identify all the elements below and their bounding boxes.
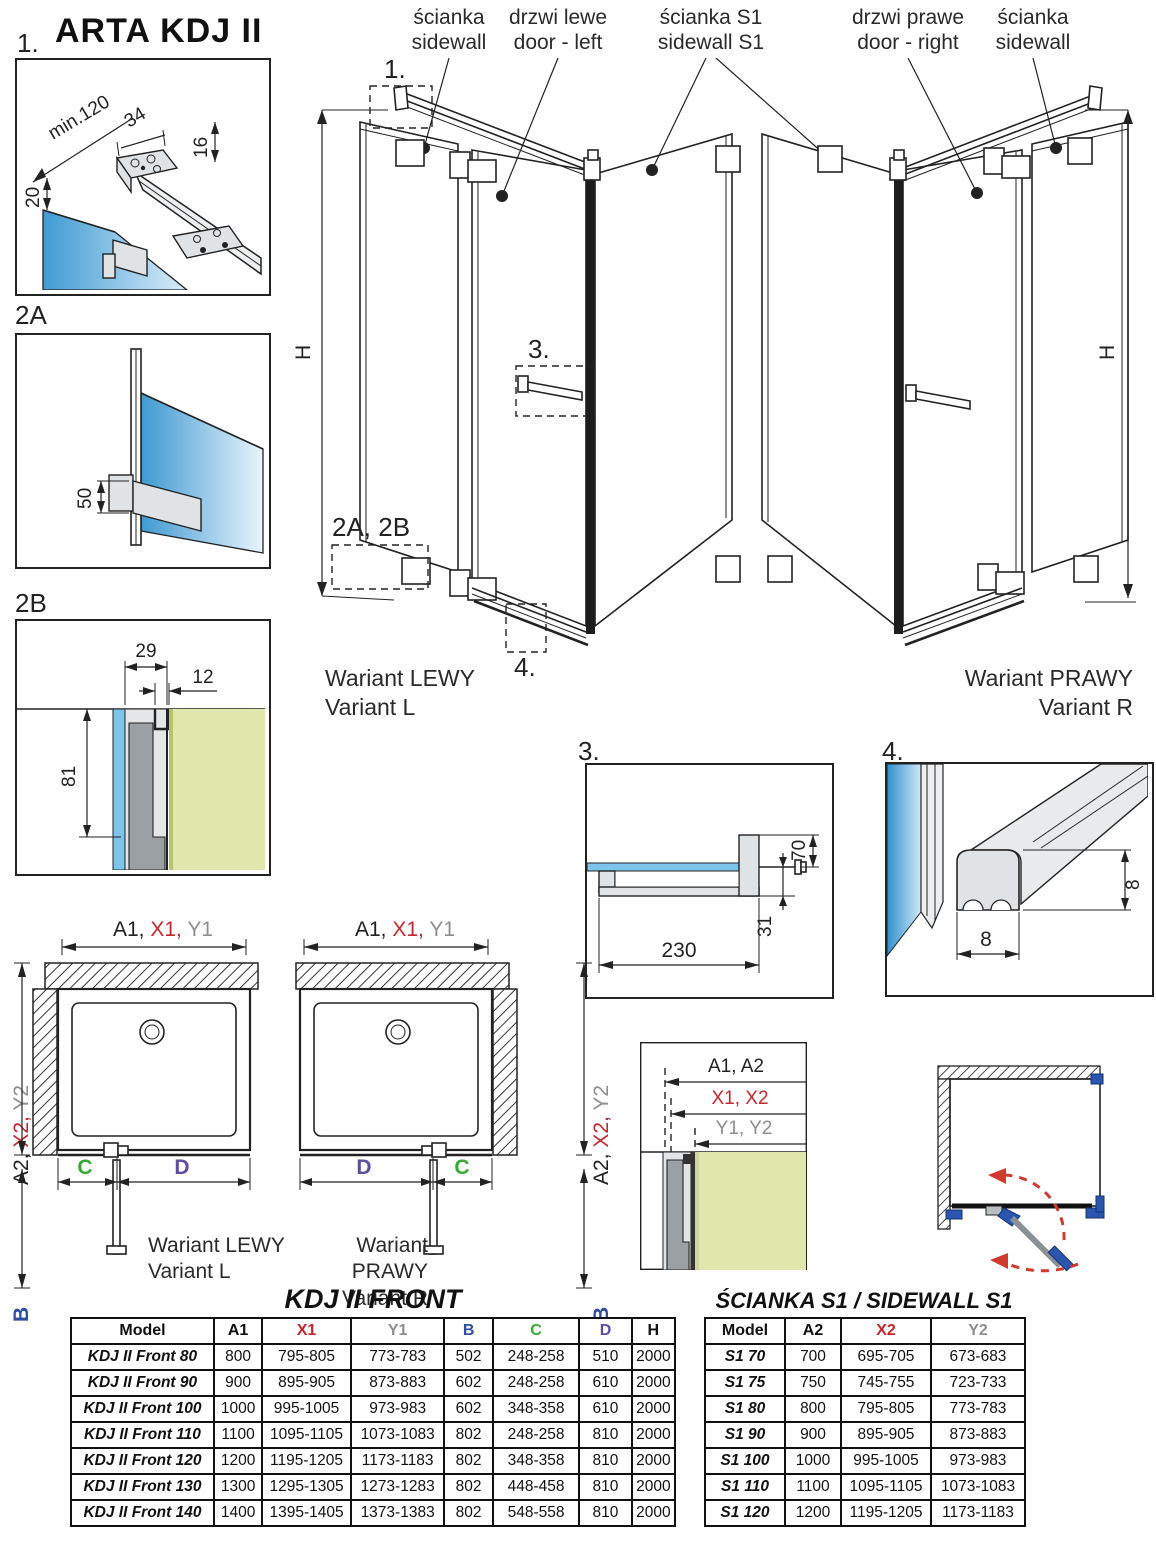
model-cell: S1 90 bbox=[705, 1422, 785, 1448]
value-cell: 348-358 bbox=[493, 1396, 580, 1422]
leader-lines bbox=[418, 58, 1062, 202]
value-cell: 2000 bbox=[632, 1344, 675, 1370]
table-row: KDJ II Front 11011001095-11051073-108380… bbox=[71, 1422, 675, 1448]
value-cell: 1295-1305 bbox=[262, 1474, 351, 1500]
value-cell: 802 bbox=[444, 1474, 492, 1500]
column-header-a2: A2 bbox=[785, 1318, 841, 1344]
column-header-h: H bbox=[632, 1318, 675, 1344]
corner-post bbox=[894, 168, 903, 634]
dim-31: 31 bbox=[755, 916, 776, 937]
header-row: ModelA2X2Y2 bbox=[705, 1318, 1025, 1344]
model-cell: KDJ II Front 110 bbox=[71, 1422, 214, 1448]
value-cell: 1273-1283 bbox=[351, 1474, 445, 1500]
dim-230: 230 bbox=[661, 939, 696, 962]
value-cell: 810 bbox=[579, 1500, 631, 1526]
glass-wall-section bbox=[699, 1152, 806, 1270]
dim-h-left: H bbox=[292, 345, 315, 360]
label-door-right: drzwi prawedoor - right bbox=[838, 6, 978, 56]
dim-c: C bbox=[77, 1156, 92, 1179]
model-cell: S1 120 bbox=[705, 1500, 785, 1526]
callout-2ab: 2A, 2B bbox=[332, 512, 410, 542]
drain bbox=[140, 1020, 164, 1044]
value-cell: 750 bbox=[785, 1370, 841, 1396]
value-cell: 602 bbox=[444, 1396, 492, 1422]
value-cell: 502 bbox=[444, 1344, 492, 1370]
value-cell: 1000 bbox=[214, 1396, 262, 1422]
column-header-y1: Y1 bbox=[351, 1318, 445, 1344]
value-cell: 1173-1183 bbox=[931, 1500, 1025, 1526]
table-row: S1 1001000995-1005973-983 bbox=[705, 1448, 1025, 1474]
door-handle bbox=[906, 385, 916, 401]
model-cell: KDJ II Front 120 bbox=[71, 1448, 214, 1474]
value-cell: 2000 bbox=[632, 1448, 675, 1474]
door-open-leaf bbox=[1012, 1218, 1060, 1266]
wall-hatch-top bbox=[938, 1066, 1100, 1079]
front-table-block: KDJ II FRONT ModelA1X1Y1BCDH KDJ II Fron… bbox=[70, 1284, 676, 1527]
model-cell: S1 110 bbox=[705, 1474, 785, 1500]
value-cell: 1200 bbox=[785, 1500, 841, 1526]
ref-dim-x: X1, X2 bbox=[711, 1088, 768, 1109]
table-row: S1 12012001195-12051173-1183 bbox=[705, 1500, 1025, 1526]
table-row: KDJ II Front 90900895-905873-883602248-2… bbox=[71, 1370, 675, 1396]
detail-4-box: 8 8 bbox=[885, 762, 1154, 997]
value-cell: 795-805 bbox=[262, 1344, 351, 1370]
label-door-left: drzwi lewedoor - left bbox=[488, 6, 628, 56]
value-cell: 673-683 bbox=[931, 1344, 1025, 1370]
table-row: KDJ II Front 12012001195-12051173-118380… bbox=[71, 1448, 675, 1474]
table-row: S1 90900895-905873-883 bbox=[705, 1422, 1025, 1448]
value-cell: 800 bbox=[214, 1344, 262, 1370]
wall-hatch-right bbox=[493, 989, 517, 1155]
wall-hatch-top bbox=[296, 963, 509, 989]
s1-table: ModelA2X2Y2 S1 70700695-705673-683S1 757… bbox=[704, 1317, 1026, 1527]
ref-dim-a: A1, A2 bbox=[708, 1056, 764, 1077]
value-cell: 1300 bbox=[214, 1474, 262, 1500]
ref-dim-y: Y1, Y2 bbox=[716, 1118, 773, 1139]
value-cell: 995-1005 bbox=[841, 1448, 931, 1474]
table-row: KDJ II Front 1001000995-1005973-98360234… bbox=[71, 1396, 675, 1422]
caption-variant-left: Wariant LEWYVariant L bbox=[325, 664, 575, 722]
detail-2a-drawing: 50 bbox=[17, 335, 265, 563]
table-row: S1 80800795-805773-783 bbox=[705, 1396, 1025, 1422]
variant-left-drawing: 1. 3. 2A, 2B 4. H bbox=[292, 58, 740, 682]
front-table-title: KDJ II FRONT bbox=[70, 1284, 676, 1315]
enclosure-outline bbox=[950, 1079, 1100, 1206]
edge-profile bbox=[921, 764, 943, 928]
wall-bracket bbox=[716, 556, 740, 582]
hinge bbox=[104, 1143, 118, 1157]
callout-4-box bbox=[506, 604, 546, 652]
value-cell: 895-905 bbox=[841, 1422, 931, 1448]
label-sidewall-right: ściankasidewall bbox=[963, 6, 1103, 56]
tray-inner bbox=[314, 1003, 478, 1136]
value-cell: 610 bbox=[579, 1370, 631, 1396]
handle-mount bbox=[739, 835, 759, 896]
handle-bottom bbox=[599, 887, 759, 896]
detail-3-box: 70 31 230 bbox=[585, 763, 834, 999]
value-cell: 1073-1083 bbox=[351, 1422, 445, 1448]
value-cell: 610 bbox=[579, 1396, 631, 1422]
value-cell: 1195-1205 bbox=[841, 1500, 931, 1526]
value-cell: 1100 bbox=[214, 1422, 262, 1448]
plan-left-b-label: B bbox=[10, 1307, 34, 1322]
value-cell: 1373-1383 bbox=[351, 1500, 445, 1526]
value-cell: 1073-1083 bbox=[931, 1474, 1025, 1500]
ref-detail-drawing: A1, A2 X1, X2 Y1, Y2 bbox=[640, 1042, 807, 1270]
column-header-model: Model bbox=[71, 1318, 214, 1344]
value-cell: 1195-1205 bbox=[262, 1448, 351, 1474]
callout-1-label: 1. bbox=[17, 28, 39, 59]
swing-arrow-in bbox=[988, 1168, 1006, 1184]
s1-table-title: ŚCIANKA S1 / SIDEWALL S1 bbox=[704, 1288, 1024, 1314]
value-cell: 800 bbox=[785, 1396, 841, 1422]
hinge-bottom-left bbox=[946, 1210, 962, 1219]
dim-20: 20 bbox=[23, 187, 44, 208]
value-cell: 2000 bbox=[632, 1370, 675, 1396]
dim-70: 70 bbox=[789, 840, 810, 861]
model-cell: S1 100 bbox=[705, 1448, 785, 1474]
glass-panel bbox=[887, 764, 921, 956]
dim-d: D bbox=[174, 1156, 189, 1179]
value-cell: 802 bbox=[444, 1448, 492, 1474]
page-title: ARTA KDJ II bbox=[55, 12, 262, 51]
hinge bbox=[432, 1143, 446, 1157]
value-cell: 773-783 bbox=[351, 1344, 445, 1370]
wall-bracket bbox=[716, 146, 740, 172]
column-header-d: D bbox=[579, 1318, 631, 1344]
header-row: ModelA1X1Y1BCDH bbox=[71, 1318, 675, 1344]
value-cell: 2000 bbox=[632, 1396, 675, 1422]
value-cell: 1100 bbox=[785, 1474, 841, 1500]
wall-bracket bbox=[1068, 138, 1092, 164]
dim-81: 81 bbox=[59, 766, 80, 787]
callout-2a-label: 2A bbox=[15, 300, 47, 331]
dim-h-right: H bbox=[1096, 345, 1119, 360]
column-header-model: Model bbox=[705, 1318, 785, 1344]
tray-inner bbox=[72, 1003, 236, 1136]
seal-face bbox=[957, 850, 1019, 910]
detail-4-drawing: 8 8 bbox=[887, 764, 1148, 991]
tray-outer bbox=[300, 989, 492, 1150]
callout-1: 1. bbox=[384, 58, 406, 84]
value-cell: 248-258 bbox=[493, 1344, 580, 1370]
plan-caption-left: Wariant LEWYVariant L bbox=[148, 1233, 298, 1286]
value-cell: 248-258 bbox=[493, 1422, 580, 1448]
value-cell: 773-783 bbox=[931, 1396, 1025, 1422]
table-row: KDJ II Front 13013001295-13051273-128380… bbox=[71, 1474, 675, 1500]
wall-section bbox=[173, 709, 265, 870]
value-cell: 2000 bbox=[632, 1474, 675, 1500]
dim-34: 34 bbox=[121, 103, 150, 132]
detail-1-drawing: min.120 34 16 20 bbox=[17, 60, 265, 290]
value-cell: 700 bbox=[785, 1344, 841, 1370]
value-cell: 745-755 bbox=[841, 1370, 931, 1396]
value-cell: 2000 bbox=[632, 1500, 675, 1526]
detail-2a-box: 50 bbox=[15, 333, 271, 569]
model-cell: S1 70 bbox=[705, 1344, 785, 1370]
value-cell: 802 bbox=[444, 1500, 492, 1526]
swing-arrow-out bbox=[990, 1253, 1008, 1269]
screw bbox=[795, 860, 801, 874]
label-sidewall-s1: ścianka S1sidewall S1 bbox=[641, 6, 781, 56]
value-cell: 723-733 bbox=[931, 1370, 1025, 1396]
value-cell: 1200 bbox=[214, 1448, 262, 1474]
value-cell: 810 bbox=[579, 1474, 631, 1500]
column-header-c: C bbox=[493, 1318, 580, 1344]
value-cell: 900 bbox=[785, 1422, 841, 1448]
value-cell: 900 bbox=[214, 1370, 262, 1396]
support-bar bbox=[135, 172, 261, 274]
value-cell: 548-558 bbox=[493, 1500, 580, 1526]
value-cell: 802 bbox=[444, 1422, 492, 1448]
callout-3: 3. bbox=[528, 334, 550, 364]
tray-outer bbox=[58, 989, 250, 1150]
detail-1-box: min.120 34 16 20 bbox=[15, 58, 271, 296]
front-table: ModelA1X1Y1BCDH KDJ II Front 80800795-80… bbox=[70, 1317, 676, 1527]
value-cell: 1173-1183 bbox=[351, 1448, 445, 1474]
column-header-x1: X1 bbox=[262, 1318, 351, 1344]
value-cell: 348-358 bbox=[493, 1448, 580, 1474]
caption-variant-right: Wariant PRAWYVariant R bbox=[935, 664, 1133, 722]
value-cell: 448-458 bbox=[493, 1474, 580, 1500]
callout-2b-label: 2B bbox=[15, 588, 47, 619]
detail-3-drawing: 70 31 230 bbox=[587, 765, 828, 993]
value-cell: 810 bbox=[579, 1448, 631, 1474]
wall-bracket bbox=[402, 558, 430, 584]
wall-hatch-left bbox=[938, 1079, 950, 1229]
value-cell: 2000 bbox=[632, 1422, 675, 1448]
column-header-y2: Y2 bbox=[931, 1318, 1025, 1344]
dim-12: 12 bbox=[192, 667, 213, 688]
door-swing-plan bbox=[928, 1058, 1120, 1296]
drain bbox=[386, 1020, 410, 1044]
dim-50: 50 bbox=[75, 488, 96, 509]
value-cell: 995-1005 bbox=[262, 1396, 351, 1422]
wall-bracket bbox=[1074, 556, 1098, 582]
dim-d: D bbox=[356, 1156, 371, 1179]
value-cell: 1095-1105 bbox=[262, 1422, 351, 1448]
table-row: S1 11011001095-11051073-1083 bbox=[705, 1474, 1025, 1500]
column-header-a1: A1 bbox=[214, 1318, 262, 1344]
hinge-top bbox=[1091, 1074, 1103, 1084]
door-handle bbox=[518, 376, 528, 392]
s1-table-block: ŚCIANKA S1 / SIDEWALL S1 ModelA2X2Y2 S1 … bbox=[704, 1288, 1024, 1527]
value-cell: 873-883 bbox=[351, 1370, 445, 1396]
dim-8h: 8 bbox=[980, 928, 992, 951]
isometric-views: 1. 3. 2A, 2B 4. H bbox=[290, 58, 1156, 748]
value-cell: 973-983 bbox=[931, 1448, 1025, 1474]
value-cell: 1095-1105 bbox=[841, 1474, 931, 1500]
model-cell: S1 80 bbox=[705, 1396, 785, 1422]
technical-sheet: ARTA KDJ II 1. 2A 2B bbox=[0, 0, 1156, 1546]
column-header-x2: X2 bbox=[841, 1318, 931, 1344]
value-cell: 973-983 bbox=[351, 1396, 445, 1422]
detail-2b-drawing: 29 12 81 bbox=[17, 621, 265, 870]
detail-2b-box: 29 12 81 bbox=[15, 619, 271, 876]
glass-panel bbox=[141, 393, 263, 553]
table-row: S1 70700695-705673-683 bbox=[705, 1344, 1025, 1370]
model-cell: KDJ II Front 130 bbox=[71, 1474, 214, 1500]
value-cell: 873-883 bbox=[931, 1422, 1025, 1448]
clamp-back bbox=[109, 475, 133, 511]
value-cell: 602 bbox=[444, 1370, 492, 1396]
model-cell: KDJ II Front 100 bbox=[71, 1396, 214, 1422]
table-row: S1 75750745-755723-733 bbox=[705, 1370, 1025, 1396]
wall-hatch-top bbox=[45, 963, 258, 989]
wall-bracket bbox=[396, 140, 424, 166]
model-cell: S1 75 bbox=[705, 1370, 785, 1396]
variant-right-drawing: H bbox=[762, 86, 1136, 645]
table-row: KDJ II Front 14014001395-14051373-138380… bbox=[71, 1500, 675, 1526]
model-cell: KDJ II Front 80 bbox=[71, 1344, 214, 1370]
model-cell: KDJ II Front 90 bbox=[71, 1370, 214, 1396]
glass-section bbox=[113, 709, 125, 870]
model-cell: KDJ II Front 140 bbox=[71, 1500, 214, 1526]
value-cell: 1400 bbox=[214, 1500, 262, 1526]
value-cell: 695-705 bbox=[841, 1344, 931, 1370]
column-header-b: B bbox=[444, 1318, 492, 1344]
value-cell: 510 bbox=[579, 1344, 631, 1370]
value-cell: 795-805 bbox=[841, 1396, 931, 1422]
value-cell: 1395-1405 bbox=[262, 1500, 351, 1526]
dim-c: C bbox=[454, 1156, 469, 1179]
value-cell: 248-258 bbox=[493, 1370, 580, 1396]
wall-bracket bbox=[768, 556, 792, 582]
glass-section bbox=[587, 863, 749, 871]
value-cell: 810 bbox=[579, 1422, 631, 1448]
table-row: KDJ II Front 80800795-805773-783502248-2… bbox=[71, 1344, 675, 1370]
wall-hatch-left bbox=[33, 989, 57, 1155]
dim-29: 29 bbox=[135, 641, 156, 662]
value-cell: 1000 bbox=[785, 1448, 841, 1474]
value-cell: 895-905 bbox=[262, 1370, 351, 1396]
dim-8v: 8 bbox=[1123, 879, 1144, 890]
dim-16: 16 bbox=[191, 137, 212, 158]
wall-bracket bbox=[818, 146, 842, 172]
